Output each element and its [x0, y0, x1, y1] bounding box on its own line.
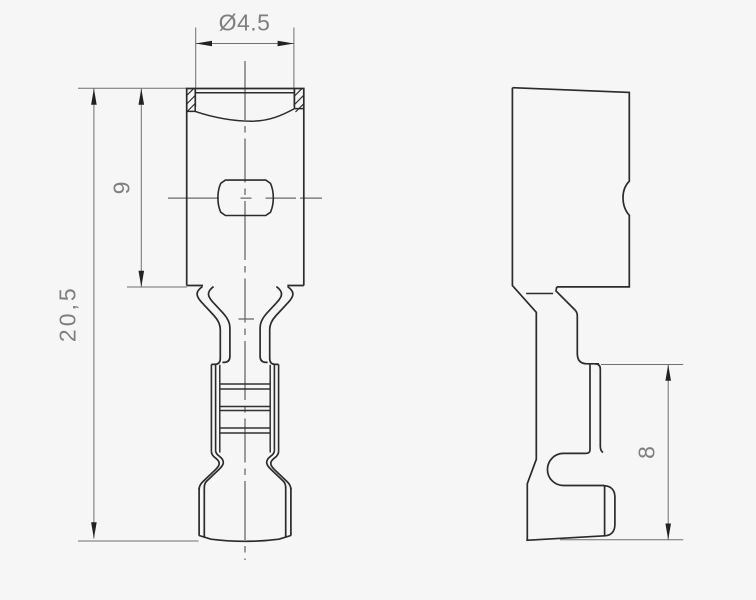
svg-text:Ø4.5: Ø4.5	[219, 10, 271, 36]
svg-text:9: 9	[109, 182, 135, 195]
svg-text:8: 8	[634, 446, 660, 459]
svg-text:20,5: 20,5	[55, 285, 81, 342]
